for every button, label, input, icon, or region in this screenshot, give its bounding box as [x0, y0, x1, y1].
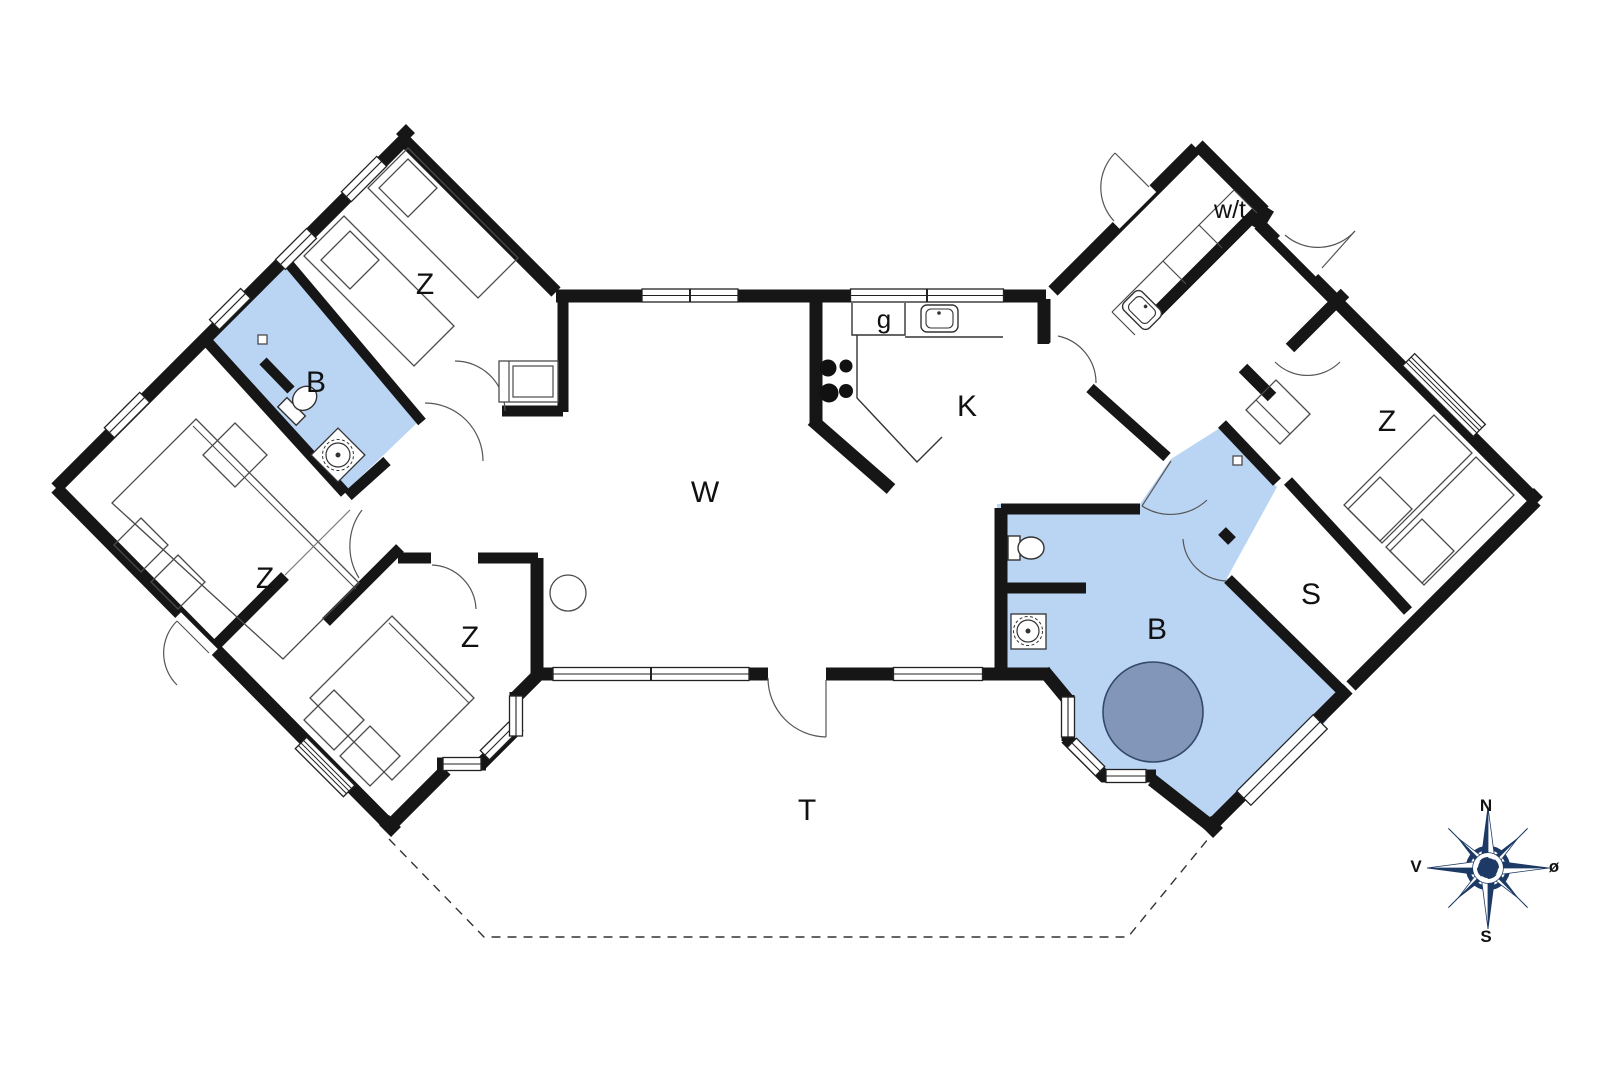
svg-text:ø: ø	[1549, 857, 1560, 876]
svg-text:g: g	[877, 304, 891, 334]
svg-text:w/t: w/t	[1213, 196, 1246, 224]
svg-text:T: T	[798, 794, 816, 827]
svg-text:Z: Z	[416, 268, 434, 301]
svg-text:S: S	[1480, 927, 1491, 946]
svg-text:B: B	[1147, 613, 1167, 646]
svg-text:Z: Z	[1378, 405, 1396, 438]
svg-text:V: V	[1410, 857, 1422, 876]
svg-text:W: W	[691, 476, 720, 509]
svg-text:S: S	[1301, 578, 1321, 611]
svg-text:K: K	[957, 390, 977, 423]
svg-text:B: B	[306, 366, 326, 399]
svg-text:N: N	[1480, 796, 1492, 815]
svg-text:Z: Z	[256, 562, 274, 595]
svg-text:Z: Z	[461, 621, 479, 654]
